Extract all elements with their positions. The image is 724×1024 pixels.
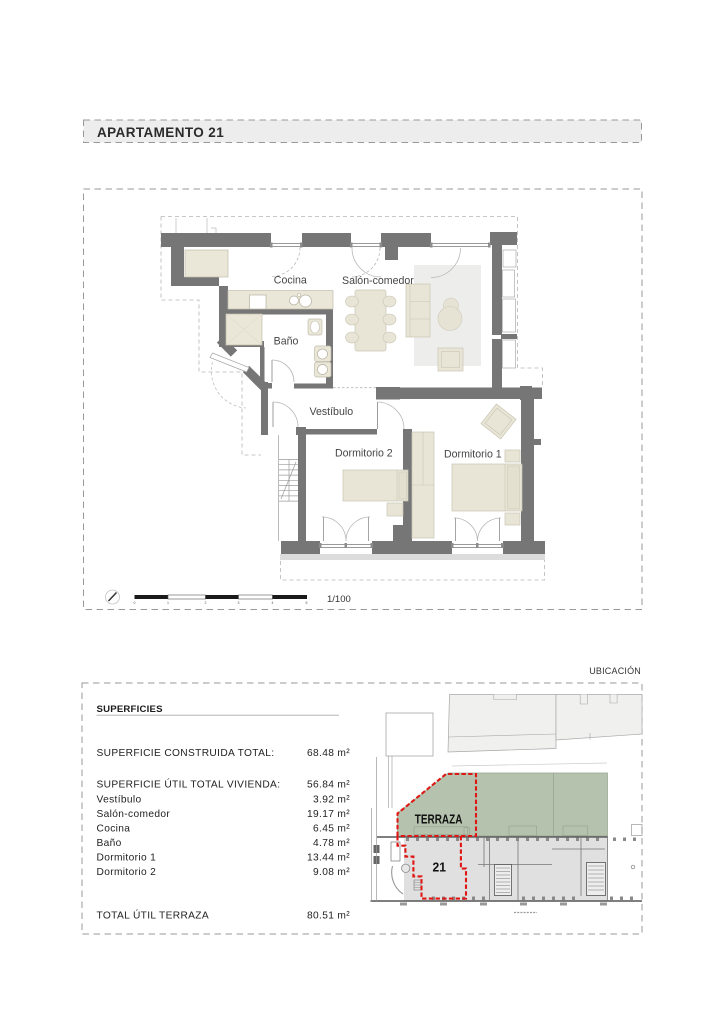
svg-text:4.78 m²: 4.78 m² (313, 838, 350, 849)
svg-text:80.51 m²: 80.51 m² (307, 911, 350, 922)
svg-text:Cocina: Cocina (274, 275, 307, 287)
svg-text:1/100: 1/100 (327, 594, 351, 605)
svg-text:5: 5 (306, 601, 308, 605)
svg-text:APARTAMENTO 21: APARTAMENTO 21 (97, 125, 224, 140)
svg-text:56.84 m²: 56.84 m² (307, 780, 350, 791)
svg-text:SUPERFICIE ÚTIL TOTAL VIVIENDA: SUPERFICIE ÚTIL TOTAL VIVIENDA: (97, 778, 281, 791)
svg-text:9.08 m²: 9.08 m² (313, 867, 350, 878)
svg-text:Dormitorio 2: Dormitorio 2 (335, 448, 393, 460)
svg-text:TERRAZA: TERRAZA (415, 812, 463, 826)
svg-text:13.44 m²: 13.44 m² (307, 853, 350, 864)
svg-text:Baño: Baño (274, 336, 299, 348)
svg-text:68.48 m²: 68.48 m² (307, 748, 350, 759)
svg-text:4: 4 (272, 601, 274, 605)
svg-text:3: 3 (238, 601, 240, 605)
svg-text:Dormitorio 2: Dormitorio 2 (97, 867, 157, 878)
svg-text:SUPERFICIES: SUPERFICIES (97, 704, 164, 715)
svg-text:Vestíbulo: Vestíbulo (97, 795, 142, 806)
svg-text:6.45 m²: 6.45 m² (313, 824, 350, 835)
svg-text:21: 21 (433, 860, 447, 875)
svg-text:0: 0 (134, 601, 136, 605)
svg-text:1: 1 (167, 601, 169, 605)
svg-text:3.92 m²: 3.92 m² (313, 795, 350, 806)
svg-text:Dormitorio 1: Dormitorio 1 (444, 449, 502, 461)
svg-text:TOTAL ÚTIL TERRAZA: TOTAL ÚTIL TERRAZA (97, 909, 210, 922)
svg-text:UBICACIÓN: UBICACIÓN (589, 666, 641, 676)
svg-text:19.17 m²: 19.17 m² (307, 809, 350, 820)
svg-text:Cocina: Cocina (97, 824, 131, 835)
svg-text:Salón-comedor: Salón-comedor (342, 275, 414, 287)
svg-text:SUPERFICIE CONSTRUIDA TOTAL:: SUPERFICIE CONSTRUIDA TOTAL: (97, 748, 275, 759)
svg-text:Salón-comedor: Salón-comedor (97, 809, 171, 820)
svg-text:Vestíbulo: Vestíbulo (310, 406, 354, 418)
svg-text:Baño: Baño (97, 838, 122, 849)
svg-text:2: 2 (205, 601, 207, 605)
svg-text:Dormitorio 1: Dormitorio 1 (97, 853, 157, 864)
